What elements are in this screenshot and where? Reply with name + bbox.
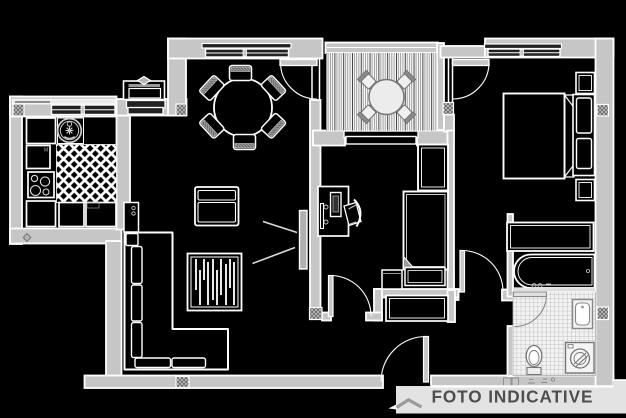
svg-text:M: M [44,148,48,154]
svg-text:FOTO INDICATIVE: FOTO INDICATIVE [432,387,594,407]
